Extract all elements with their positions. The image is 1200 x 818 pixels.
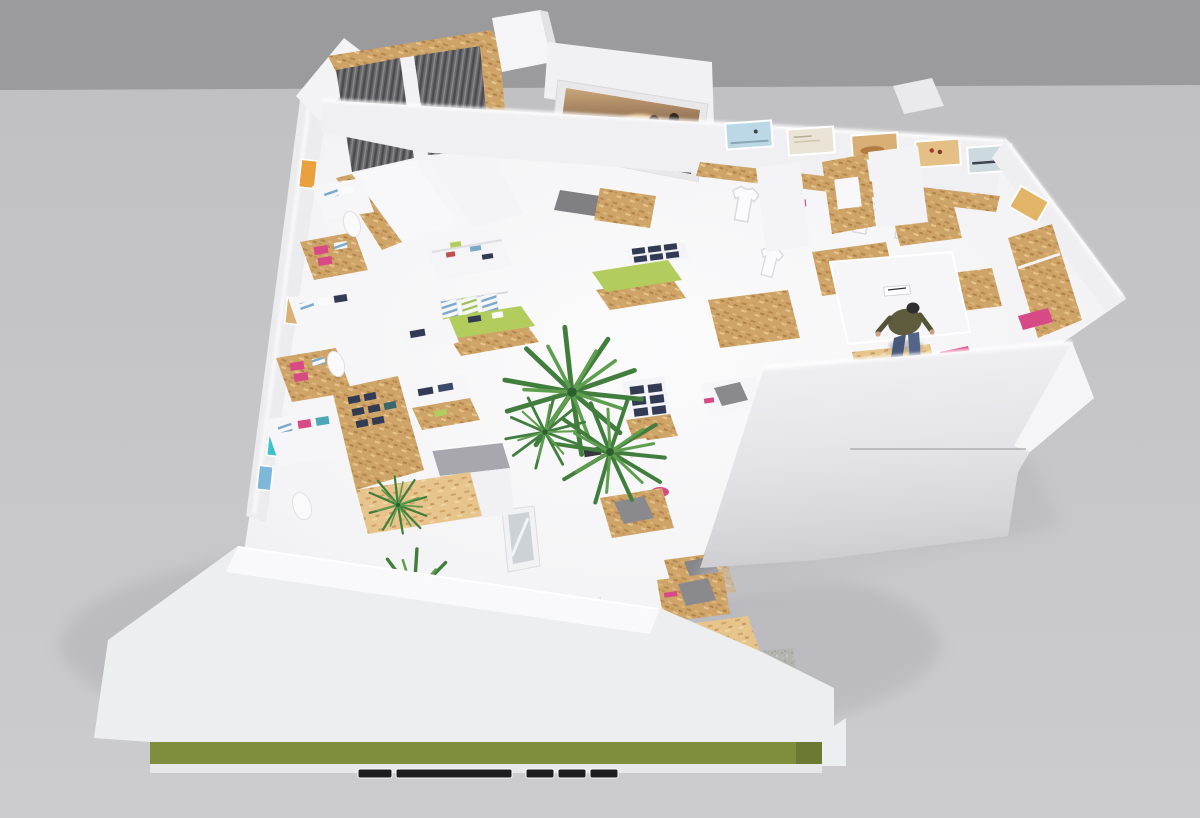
green-facade-band — [150, 742, 822, 764]
person-hand-right — [929, 329, 934, 334]
vent-slot-3 — [526, 769, 554, 778]
poster-orange — [299, 159, 318, 189]
ventilation-slots — [358, 769, 618, 778]
osb-floor-1 — [708, 290, 800, 348]
store-render-canvas — [0, 0, 1200, 818]
person-hand-left — [875, 331, 880, 336]
green-band-dark-end — [796, 742, 822, 764]
poster-ocean — [725, 120, 773, 149]
vent-slot-4 — [558, 769, 586, 778]
person-cap — [907, 303, 920, 314]
poster-beach-2 — [915, 139, 961, 168]
store-3d-render — [0, 0, 1200, 818]
small-sign — [884, 285, 911, 296]
vent-slot-5 — [590, 769, 618, 778]
wardrobe-inner — [834, 177, 861, 210]
poster-ocean-small — [257, 465, 273, 490]
vent-slot-2 — [396, 769, 512, 778]
white-partition-2 — [868, 146, 928, 228]
leaning-mirror — [502, 506, 540, 572]
vent-slot-1 — [358, 769, 392, 778]
